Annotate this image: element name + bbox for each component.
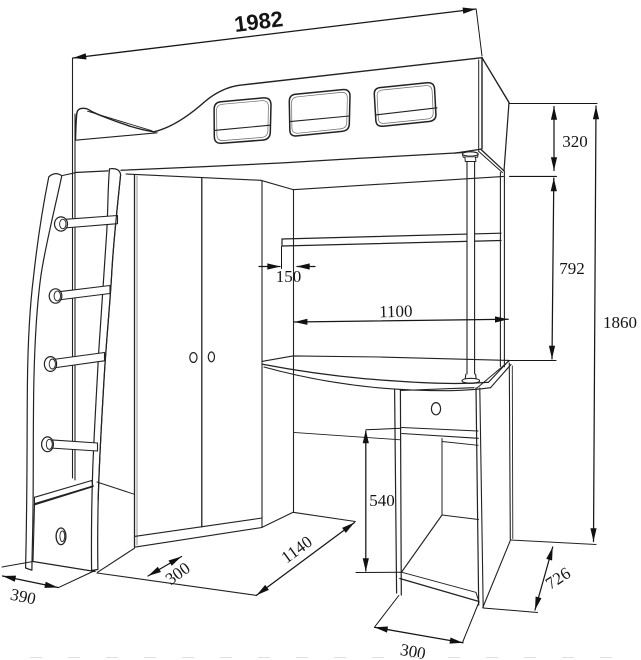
svg-text:320: 320: [562, 132, 588, 151]
svg-text:540: 540: [369, 491, 395, 510]
svg-text:1860: 1860: [603, 313, 637, 332]
svg-text:792: 792: [559, 259, 585, 278]
svg-text:150: 150: [276, 267, 302, 286]
svg-text:1100: 1100: [379, 302, 413, 322]
